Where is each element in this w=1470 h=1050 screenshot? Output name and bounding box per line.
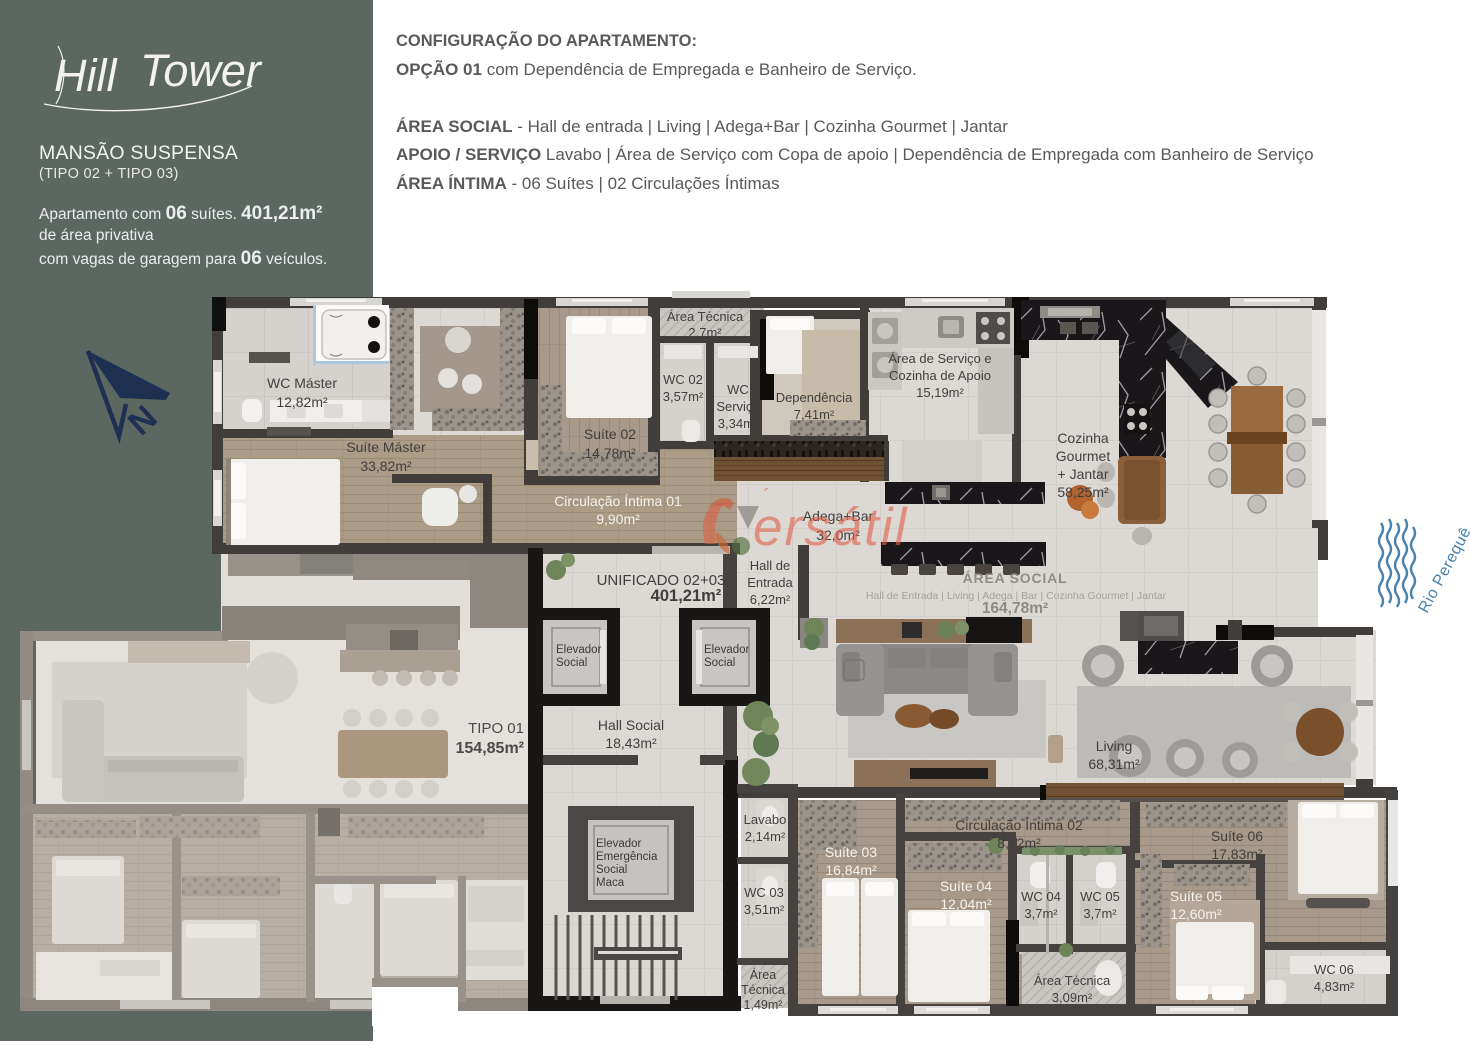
svg-text:164,78m²: 164,78m² <box>982 600 1048 617</box>
svg-text:Suíte 06: Suíte 06 <box>1211 828 1263 844</box>
svg-text:Área Técnica: Área Técnica <box>667 309 744 324</box>
svg-text:WC 05: WC 05 <box>1080 889 1120 904</box>
svg-text:Elevador: Elevador <box>556 644 602 656</box>
svg-text:Suíte 04: Suíte 04 <box>940 878 992 894</box>
svg-text:9,90m²: 9,90m² <box>596 511 640 527</box>
svg-text:Suíte 02: Suíte 02 <box>584 426 636 442</box>
svg-text:ÁREA SOCIAL: ÁREA SOCIAL <box>963 570 1068 586</box>
svg-text:Circulação Íntima 01: Circulação Íntima 01 <box>554 493 682 509</box>
svg-text:3,7m²: 3,7m² <box>1083 906 1117 921</box>
svg-text:3,57m²: 3,57m² <box>663 389 704 404</box>
svg-text:Living: Living <box>1096 738 1133 754</box>
svg-text:Hall Social: Hall Social <box>598 717 664 733</box>
svg-text:(TIPO 02 + TIPO 03): (TIPO 02 + TIPO 03) <box>39 166 179 182</box>
svg-text:Área Técnica: Área Técnica <box>1034 973 1111 988</box>
svg-text:7,41m²: 7,41m² <box>794 407 835 422</box>
svg-text:401,21m²: 401,21m² <box>651 587 722 605</box>
svg-text:de área privativa: de área privativa <box>39 227 154 244</box>
svg-text:3,09m²: 3,09m² <box>1052 990 1093 1005</box>
svg-text:8,72m²: 8,72m² <box>997 835 1041 851</box>
svg-text:15,19m²: 15,19m² <box>916 385 964 400</box>
svg-text:18,43m²: 18,43m² <box>605 735 657 751</box>
svg-text:Dependência: Dependência <box>776 390 853 405</box>
svg-text:3,34m²: 3,34m² <box>718 416 759 431</box>
svg-text:+ Jantar: + Jantar <box>1058 466 1109 482</box>
svg-text:CONFIGURAÇÃO DO APARTAMENTO:: CONFIGURAÇÃO DO APARTAMENTO: <box>396 30 697 50</box>
svg-text:Circulação Íntima 02: Circulação Íntima 02 <box>955 817 1083 833</box>
svg-text:Suíte 03: Suíte 03 <box>825 844 877 860</box>
svg-text:Suíte 05: Suíte 05 <box>1170 888 1222 904</box>
svg-text:ÁREA ÍNTIMA - 06 Suítes | 02 C: ÁREA ÍNTIMA - 06 Suítes | 02 Circulações… <box>396 174 780 193</box>
svg-text:WC 02: WC 02 <box>663 372 703 387</box>
svg-text:Hall de: Hall de <box>750 558 790 573</box>
svg-text:3,7m²: 3,7m² <box>1024 906 1058 921</box>
svg-text:Lavabo: Lavabo <box>744 812 787 827</box>
svg-text:Maca: Maca <box>596 877 625 889</box>
svg-text:´: ´ <box>762 486 769 508</box>
svg-text:4,83m²: 4,83m² <box>1314 979 1355 994</box>
svg-text:154,85m²: 154,85m² <box>456 740 525 757</box>
svg-text:Cozinha de Apoio: Cozinha de Apoio <box>889 368 991 383</box>
svg-text:Suíte Máster: Suíte Máster <box>346 439 426 455</box>
svg-text:Apartamento com 06 suítes. 401: Apartamento com 06 suítes. 401,21m² <box>39 203 322 224</box>
svg-text:Social: Social <box>704 657 735 669</box>
svg-text:Social: Social <box>556 657 587 669</box>
svg-text:1,49m²: 1,49m² <box>744 998 783 1012</box>
svg-text:14,78m²: 14,78m² <box>584 445 636 461</box>
svg-text:6,22m²: 6,22m² <box>750 592 791 607</box>
svg-text:17,83m²: 17,83m² <box>1211 846 1263 862</box>
svg-text:WC Máster: WC Máster <box>267 375 337 391</box>
svg-text:Elevador: Elevador <box>596 838 642 850</box>
svg-text:ersátil: ersátil <box>753 498 908 557</box>
svg-text:Técnica: Técnica <box>741 983 785 997</box>
svg-text:Cozinha: Cozinha <box>1057 430 1109 446</box>
svg-text:58,25m²: 58,25m² <box>1057 484 1109 500</box>
svg-text:WC 03: WC 03 <box>744 885 784 900</box>
svg-text:Social: Social <box>596 864 627 876</box>
svg-text:WC 06: WC 06 <box>1314 962 1354 977</box>
svg-text:Tower: Tower <box>140 45 263 96</box>
svg-text:12,82m²: 12,82m² <box>276 394 328 410</box>
svg-text:Área de Serviço e: Área de Serviço e <box>888 351 991 366</box>
svg-text:Gourmet: Gourmet <box>1056 448 1111 464</box>
svg-text:Área: Área <box>750 967 776 982</box>
svg-text:12,60m²: 12,60m² <box>1170 906 1222 922</box>
svg-text:TIPO 01: TIPO 01 <box>468 720 524 737</box>
svg-text:2,14m²: 2,14m² <box>745 829 786 844</box>
svg-text:Entrada: Entrada <box>747 575 793 590</box>
svg-text:Elevador: Elevador <box>704 644 750 656</box>
svg-text:ÁREA SOCIAL - Hall de entrada: ÁREA SOCIAL - Hall de entrada | Living |… <box>396 117 1008 136</box>
svg-text:Emergência: Emergência <box>596 851 658 863</box>
svg-text:2,7m²: 2,7m² <box>688 325 722 340</box>
svg-text:MANSÃO SUSPENSA: MANSÃO SUSPENSA <box>39 140 238 164</box>
svg-text:OPÇÃO 01 com Dependência de Em: OPÇÃO 01 com Dependência de Empregada e … <box>396 59 917 79</box>
svg-text:68,31m²: 68,31m² <box>1088 756 1140 772</box>
svg-text:33,82m²: 33,82m² <box>360 458 412 474</box>
svg-text:WC 04: WC 04 <box>1021 889 1061 904</box>
svg-text:APOIO / SERVIÇO Lavabo | Área: APOIO / SERVIÇO Lavabo | Área de Serviço… <box>396 145 1314 164</box>
svg-text:com vagas de garagem para 06 v: com vagas de garagem para 06 veículos. <box>39 248 327 269</box>
svg-text:16,84m²: 16,84m² <box>825 862 877 878</box>
svg-text:12,04m²: 12,04m² <box>940 896 992 912</box>
svg-text:WC: WC <box>727 382 749 397</box>
svg-text:3,51m²: 3,51m² <box>744 902 785 917</box>
svg-text:Serviço: Serviço <box>716 399 759 414</box>
